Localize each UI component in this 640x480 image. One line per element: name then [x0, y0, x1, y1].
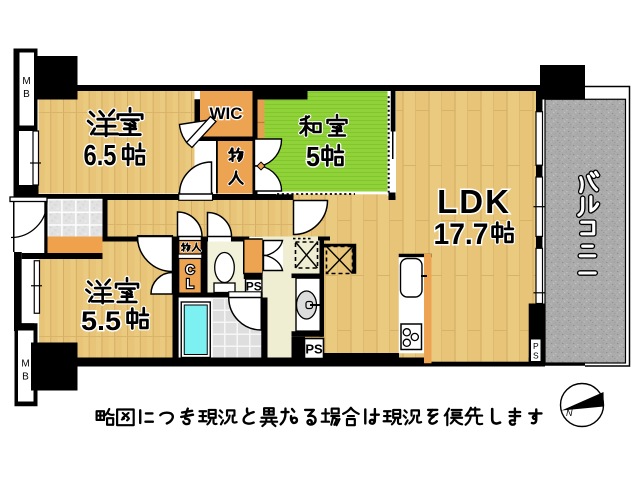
svg-text:5.5: 5.5	[81, 306, 121, 336]
svg-text:17.7: 17.7	[434, 218, 489, 251]
svg-text:S: S	[533, 351, 539, 361]
svg-text:M: M	[21, 359, 29, 370]
svg-text:M: M	[22, 76, 30, 87]
svg-text:L: L	[186, 277, 194, 291]
svg-text:PS: PS	[305, 342, 323, 357]
svg-text:LDK: LDK	[437, 183, 511, 220]
svg-text:B: B	[23, 89, 30, 100]
svg-text:5: 5	[306, 141, 320, 172]
svg-text:P: P	[533, 341, 539, 351]
svg-text:6.5: 6.5	[84, 140, 117, 172]
svg-text:B: B	[22, 372, 29, 383]
svg-text:N: N	[566, 408, 573, 418]
svg-text:C: C	[185, 263, 194, 277]
